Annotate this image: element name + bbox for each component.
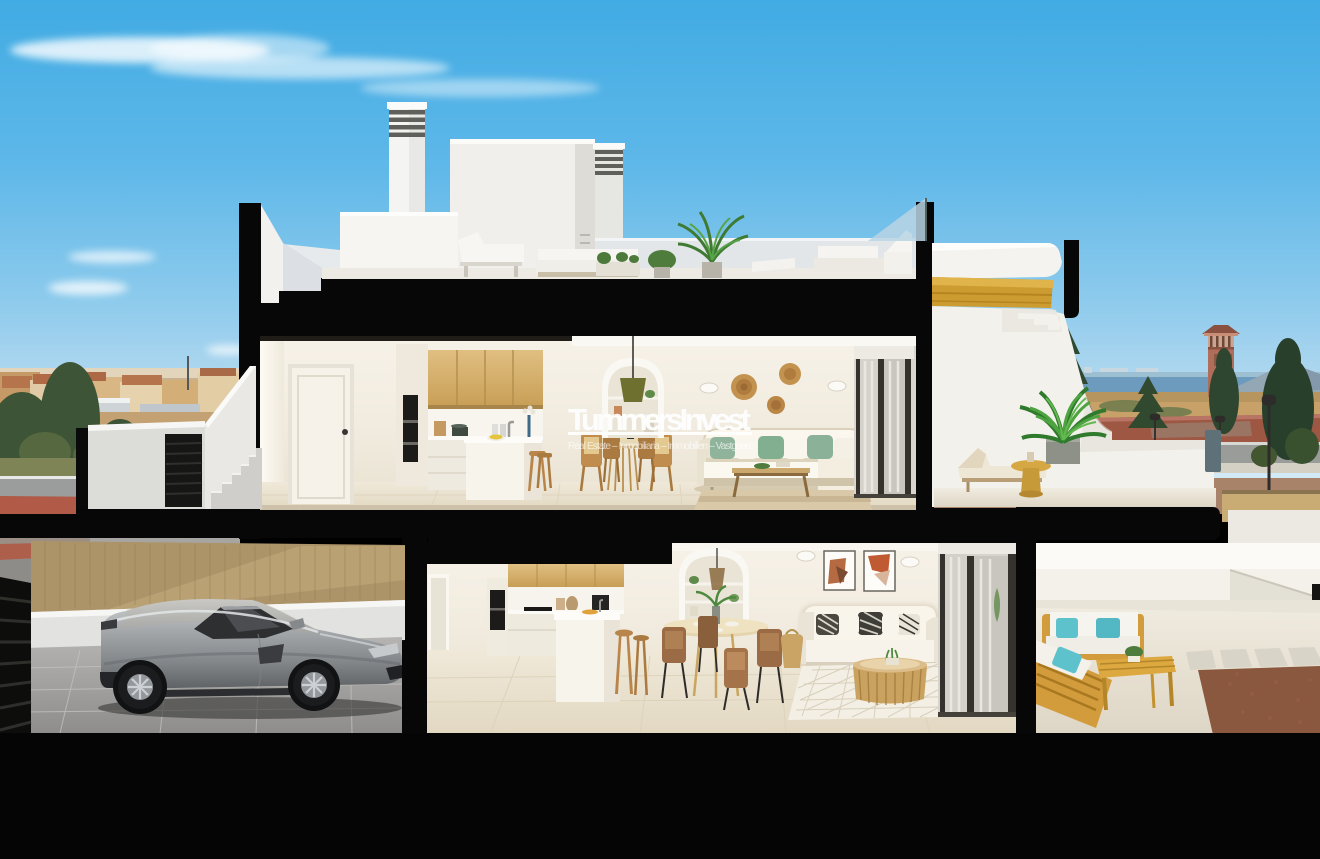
svg-text:TummersInvest: TummersInvest <box>568 402 751 437</box>
svg-text:Real Estate – Inmobiliaria – I: Real Estate – Inmobiliaria – Immobilien … <box>568 441 751 452</box>
